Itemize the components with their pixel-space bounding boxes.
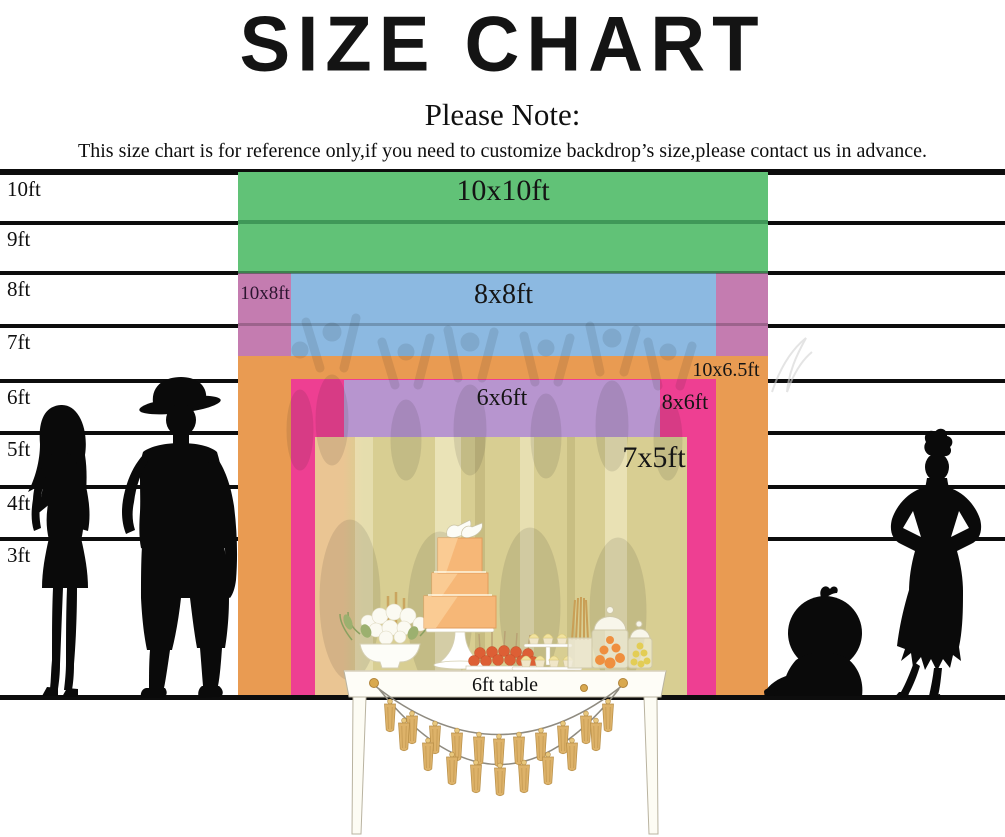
table-size-label: 6ft table bbox=[343, 674, 667, 697]
tick-8ft: 8ft bbox=[7, 277, 30, 302]
garland-string-lower bbox=[379, 689, 619, 765]
photo-streak bbox=[605, 437, 627, 696]
line-8ft-over-rects bbox=[238, 271, 768, 274]
size-label-10x8: 10x8ft bbox=[239, 283, 291, 305]
tick-10ft: 10ft bbox=[7, 177, 41, 202]
tick-4ft: 4ft bbox=[7, 491, 30, 516]
page-title: SIZE CHART bbox=[0, 0, 1005, 89]
note-heading: Please Note: bbox=[0, 97, 1005, 133]
size-label-7x5: 7x5ft bbox=[617, 441, 691, 475]
size-label-10x10: 10x10ft bbox=[238, 174, 768, 208]
line-7ft-over-rects bbox=[238, 323, 768, 326]
silhouette-woman-left bbox=[28, 405, 90, 697]
size-label-6x6: 6x6ft bbox=[344, 385, 660, 412]
watermark-squiggle bbox=[772, 338, 812, 392]
photo-streak bbox=[475, 437, 485, 696]
tick-3ft: 3ft bbox=[7, 543, 30, 568]
silhouette-baby bbox=[764, 586, 862, 696]
table-leg-left bbox=[352, 697, 366, 834]
tassels-lower bbox=[399, 718, 602, 796]
size-chart-infographic: SIZE CHART Please Note: This size chart … bbox=[0, 0, 1005, 837]
bucket-hat bbox=[138, 392, 221, 418]
tick-6ft: 6ft bbox=[7, 385, 30, 410]
table-leg-right bbox=[644, 697, 658, 834]
size-label-8x6: 8x6ft bbox=[655, 389, 715, 415]
size-label-8x8: 8x8ft bbox=[291, 279, 716, 311]
fringe-skirt bbox=[897, 590, 963, 671]
shorts bbox=[141, 546, 229, 650]
size-label-10x6-5: 10x6.5ft bbox=[684, 359, 768, 382]
silhouette-woman-right bbox=[891, 429, 981, 700]
photo-streak bbox=[520, 437, 534, 696]
backdrop-rect-7x5-photo bbox=[315, 437, 687, 696]
tassels-upper bbox=[385, 699, 614, 767]
photo-streak bbox=[355, 437, 373, 696]
tick-5ft: 5ft bbox=[7, 437, 30, 462]
line-9ft-over-green bbox=[238, 220, 768, 224]
tick-7ft: 7ft bbox=[7, 330, 30, 355]
hair bbox=[28, 405, 87, 516]
photo-streak bbox=[567, 437, 575, 696]
note-text: This size chart is for reference only,if… bbox=[0, 140, 1005, 163]
photo-streak bbox=[435, 437, 461, 696]
tick-9ft: 9ft bbox=[7, 227, 30, 252]
hair-curl bbox=[820, 586, 837, 600]
